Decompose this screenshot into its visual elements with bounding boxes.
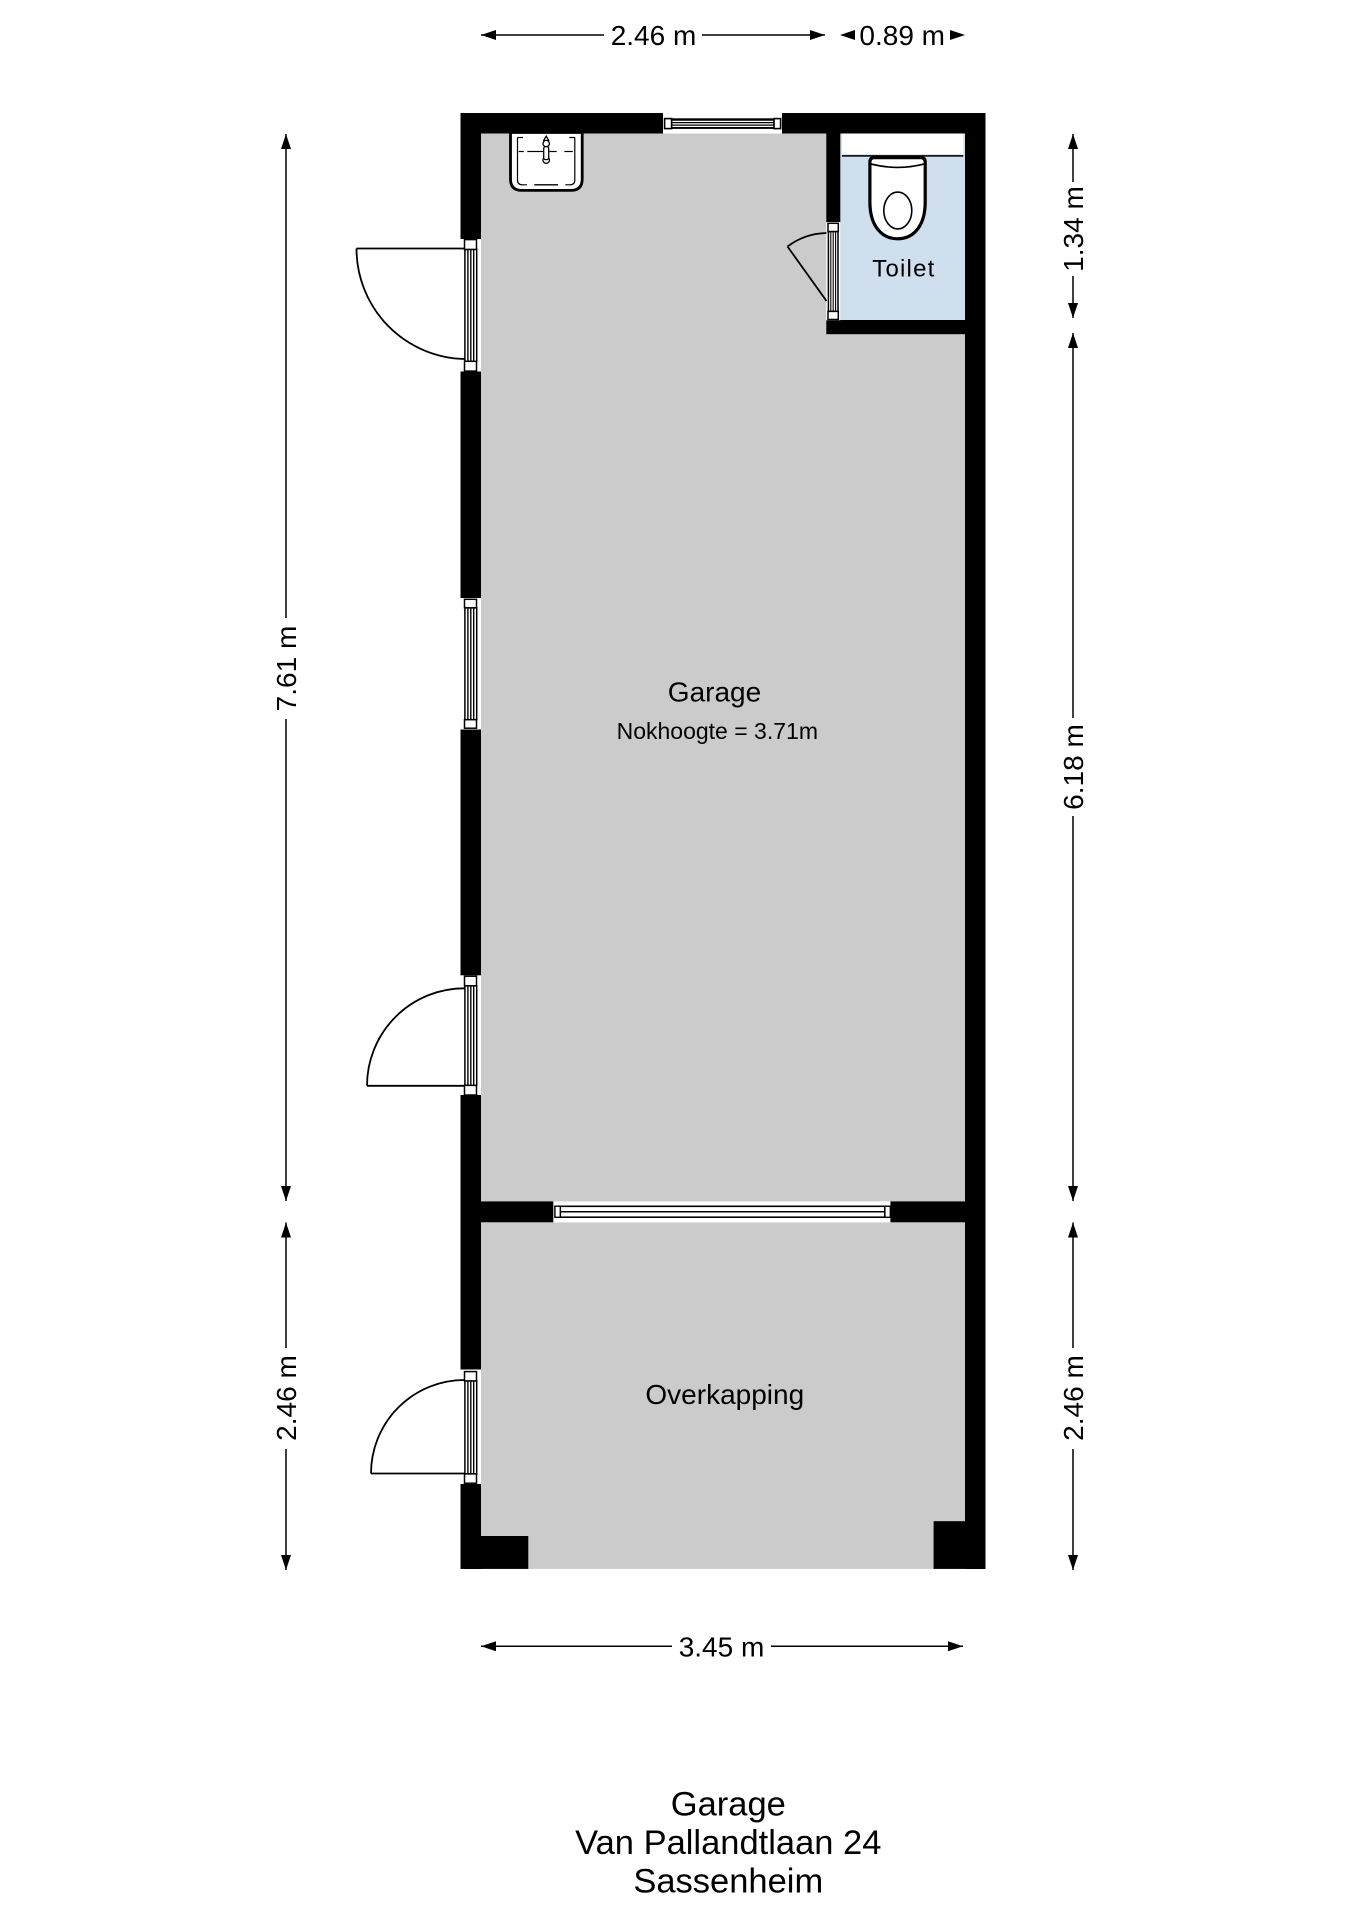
svg-text:Sassenheim: Sassenheim (633, 1862, 823, 1900)
svg-text:0.89 m: 0.89 m (859, 20, 945, 51)
svg-text:1.34 m: 1.34 m (1058, 186, 1089, 272)
svg-text:2.46 m: 2.46 m (1058, 1355, 1089, 1441)
svg-text:2.46 m: 2.46 m (271, 1355, 302, 1441)
svg-text:Garage: Garage (668, 677, 761, 708)
svg-text:3.45 m: 3.45 m (679, 1631, 765, 1662)
svg-text:Toilet: Toilet (872, 256, 935, 283)
svg-text:2.46 m: 2.46 m (611, 20, 697, 51)
svg-text:Nokhoogte = 3.71m: Nokhoogte = 3.71m (617, 718, 818, 744)
svg-text:Van Pallandtlaan 24: Van Pallandtlaan 24 (575, 1824, 881, 1862)
svg-text:7.61 m: 7.61 m (271, 626, 302, 712)
svg-text:6.18 m: 6.18 m (1058, 724, 1089, 810)
svg-text:Garage: Garage (671, 1785, 786, 1823)
svg-text:Overkapping: Overkapping (645, 1379, 804, 1410)
